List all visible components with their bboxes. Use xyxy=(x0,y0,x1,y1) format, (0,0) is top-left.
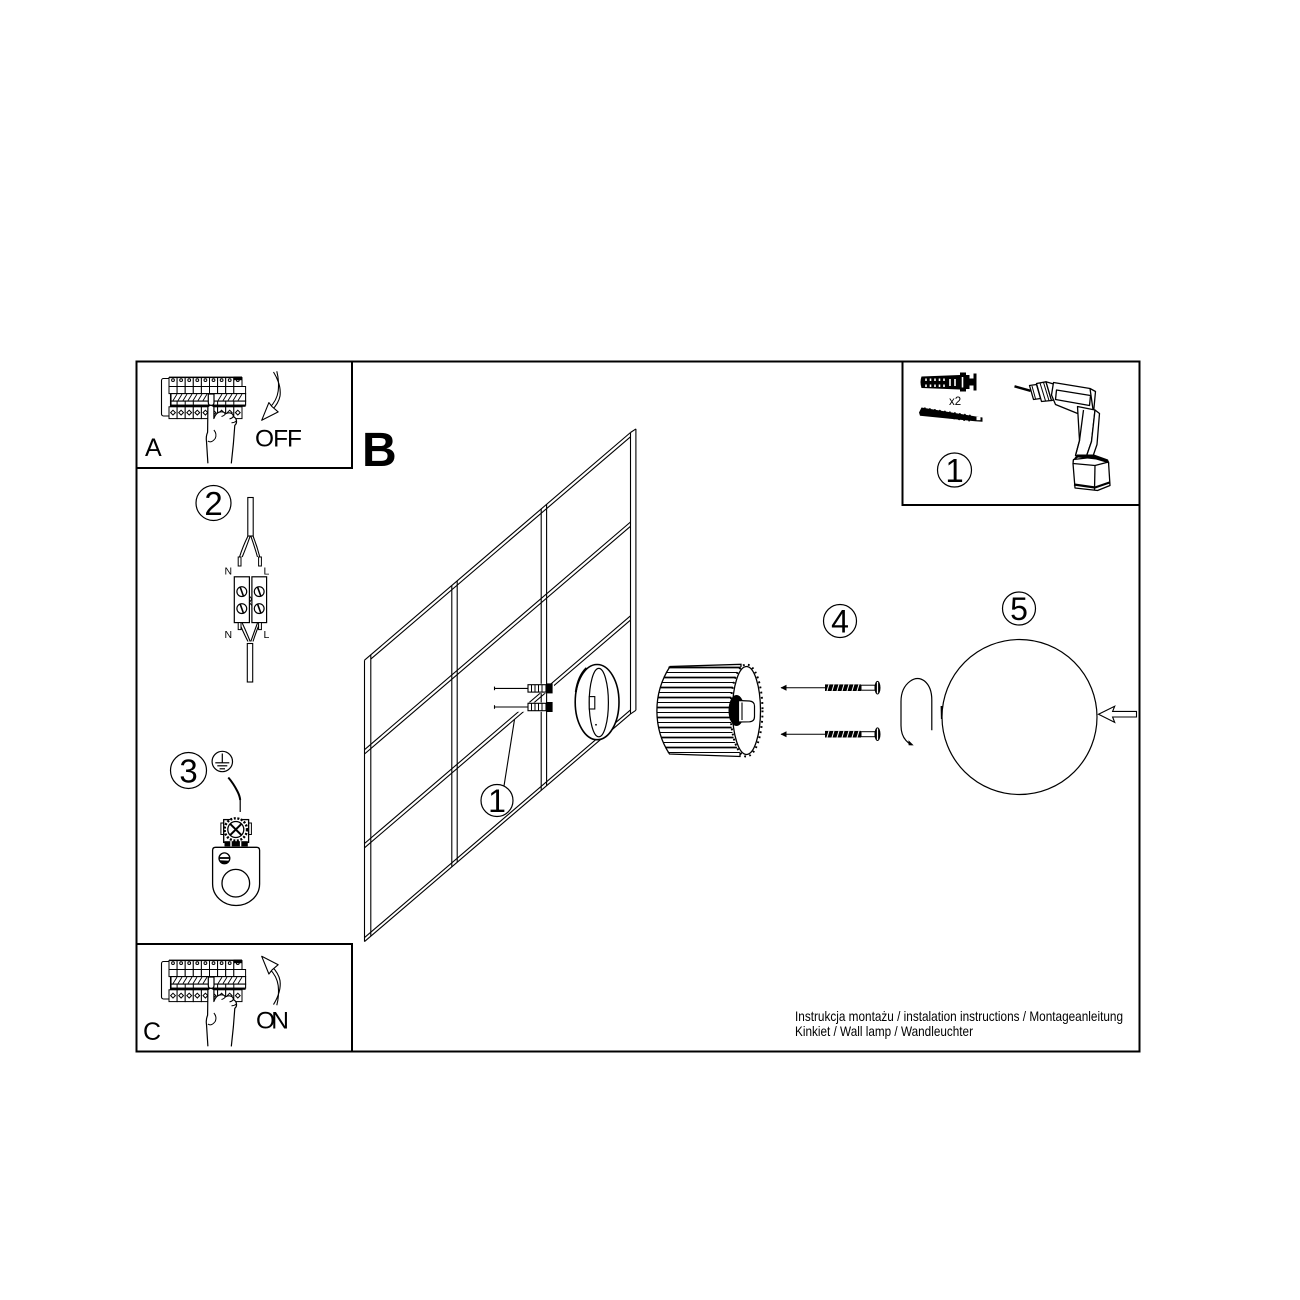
svg-text:N: N xyxy=(225,566,233,578)
svg-text:A: A xyxy=(145,434,162,462)
svg-text:N: N xyxy=(225,629,233,641)
svg-text:ON: ON xyxy=(256,1008,290,1035)
svg-text:2: 2 xyxy=(204,485,222,522)
svg-text:Kinkiet / Wall lamp / Wandleuc: Kinkiet / Wall lamp / Wandleuchter xyxy=(795,1023,973,1039)
svg-text:L: L xyxy=(264,566,270,578)
svg-text:3: 3 xyxy=(179,753,197,790)
svg-text:Instrukcja montażu / instalati: Instrukcja montażu / instalation instruc… xyxy=(795,1008,1123,1024)
svg-text:L: L xyxy=(264,629,270,641)
svg-text:4: 4 xyxy=(831,604,849,640)
svg-text:B: B xyxy=(362,424,397,477)
svg-text:OFF: OFF xyxy=(255,426,303,453)
svg-text:1: 1 xyxy=(488,783,506,819)
svg-text:5: 5 xyxy=(1010,591,1028,627)
svg-text:C: C xyxy=(143,1018,161,1046)
svg-text:1: 1 xyxy=(945,452,963,489)
svg-text:x2: x2 xyxy=(949,396,961,408)
